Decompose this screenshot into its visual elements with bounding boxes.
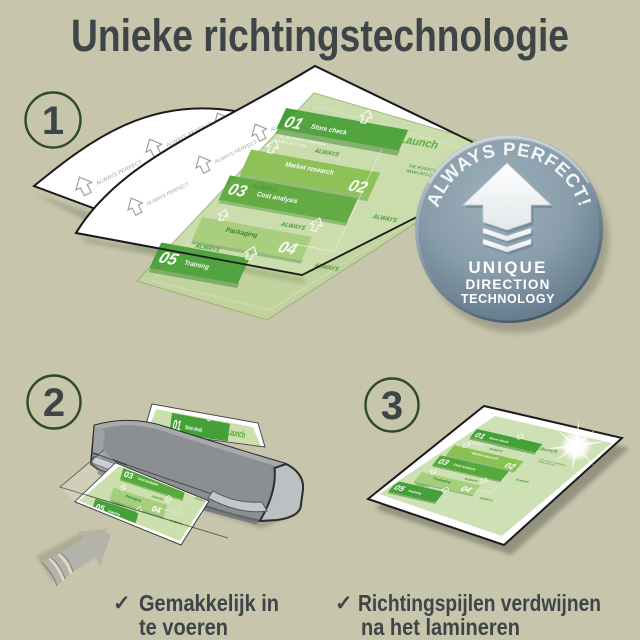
svg-text:✓: ✓	[335, 592, 353, 615]
svg-text:te voeren: te voeren	[139, 614, 228, 640]
svg-text:1: 1	[42, 99, 64, 143]
svg-text:TECHNOLOGY: TECHNOLOGY	[461, 292, 555, 306]
svg-text:Richtingspijlen verdwijnen: Richtingspijlen verdwijnen	[358, 590, 601, 616]
svg-text:✓: ✓	[113, 592, 131, 615]
svg-text:na het lamineren: na het lamineren	[361, 614, 520, 640]
svg-text:Unieke richtingstechnologie: Unieke richtingstechnologie	[71, 10, 569, 61]
svg-text:2: 2	[43, 381, 65, 425]
svg-text:DIRECTION: DIRECTION	[465, 277, 550, 292]
svg-text:3: 3	[381, 384, 403, 428]
svg-text:Gemakkelijk in: Gemakkelijk in	[139, 590, 279, 616]
svg-text:UNIQUE: UNIQUE	[468, 258, 547, 277]
